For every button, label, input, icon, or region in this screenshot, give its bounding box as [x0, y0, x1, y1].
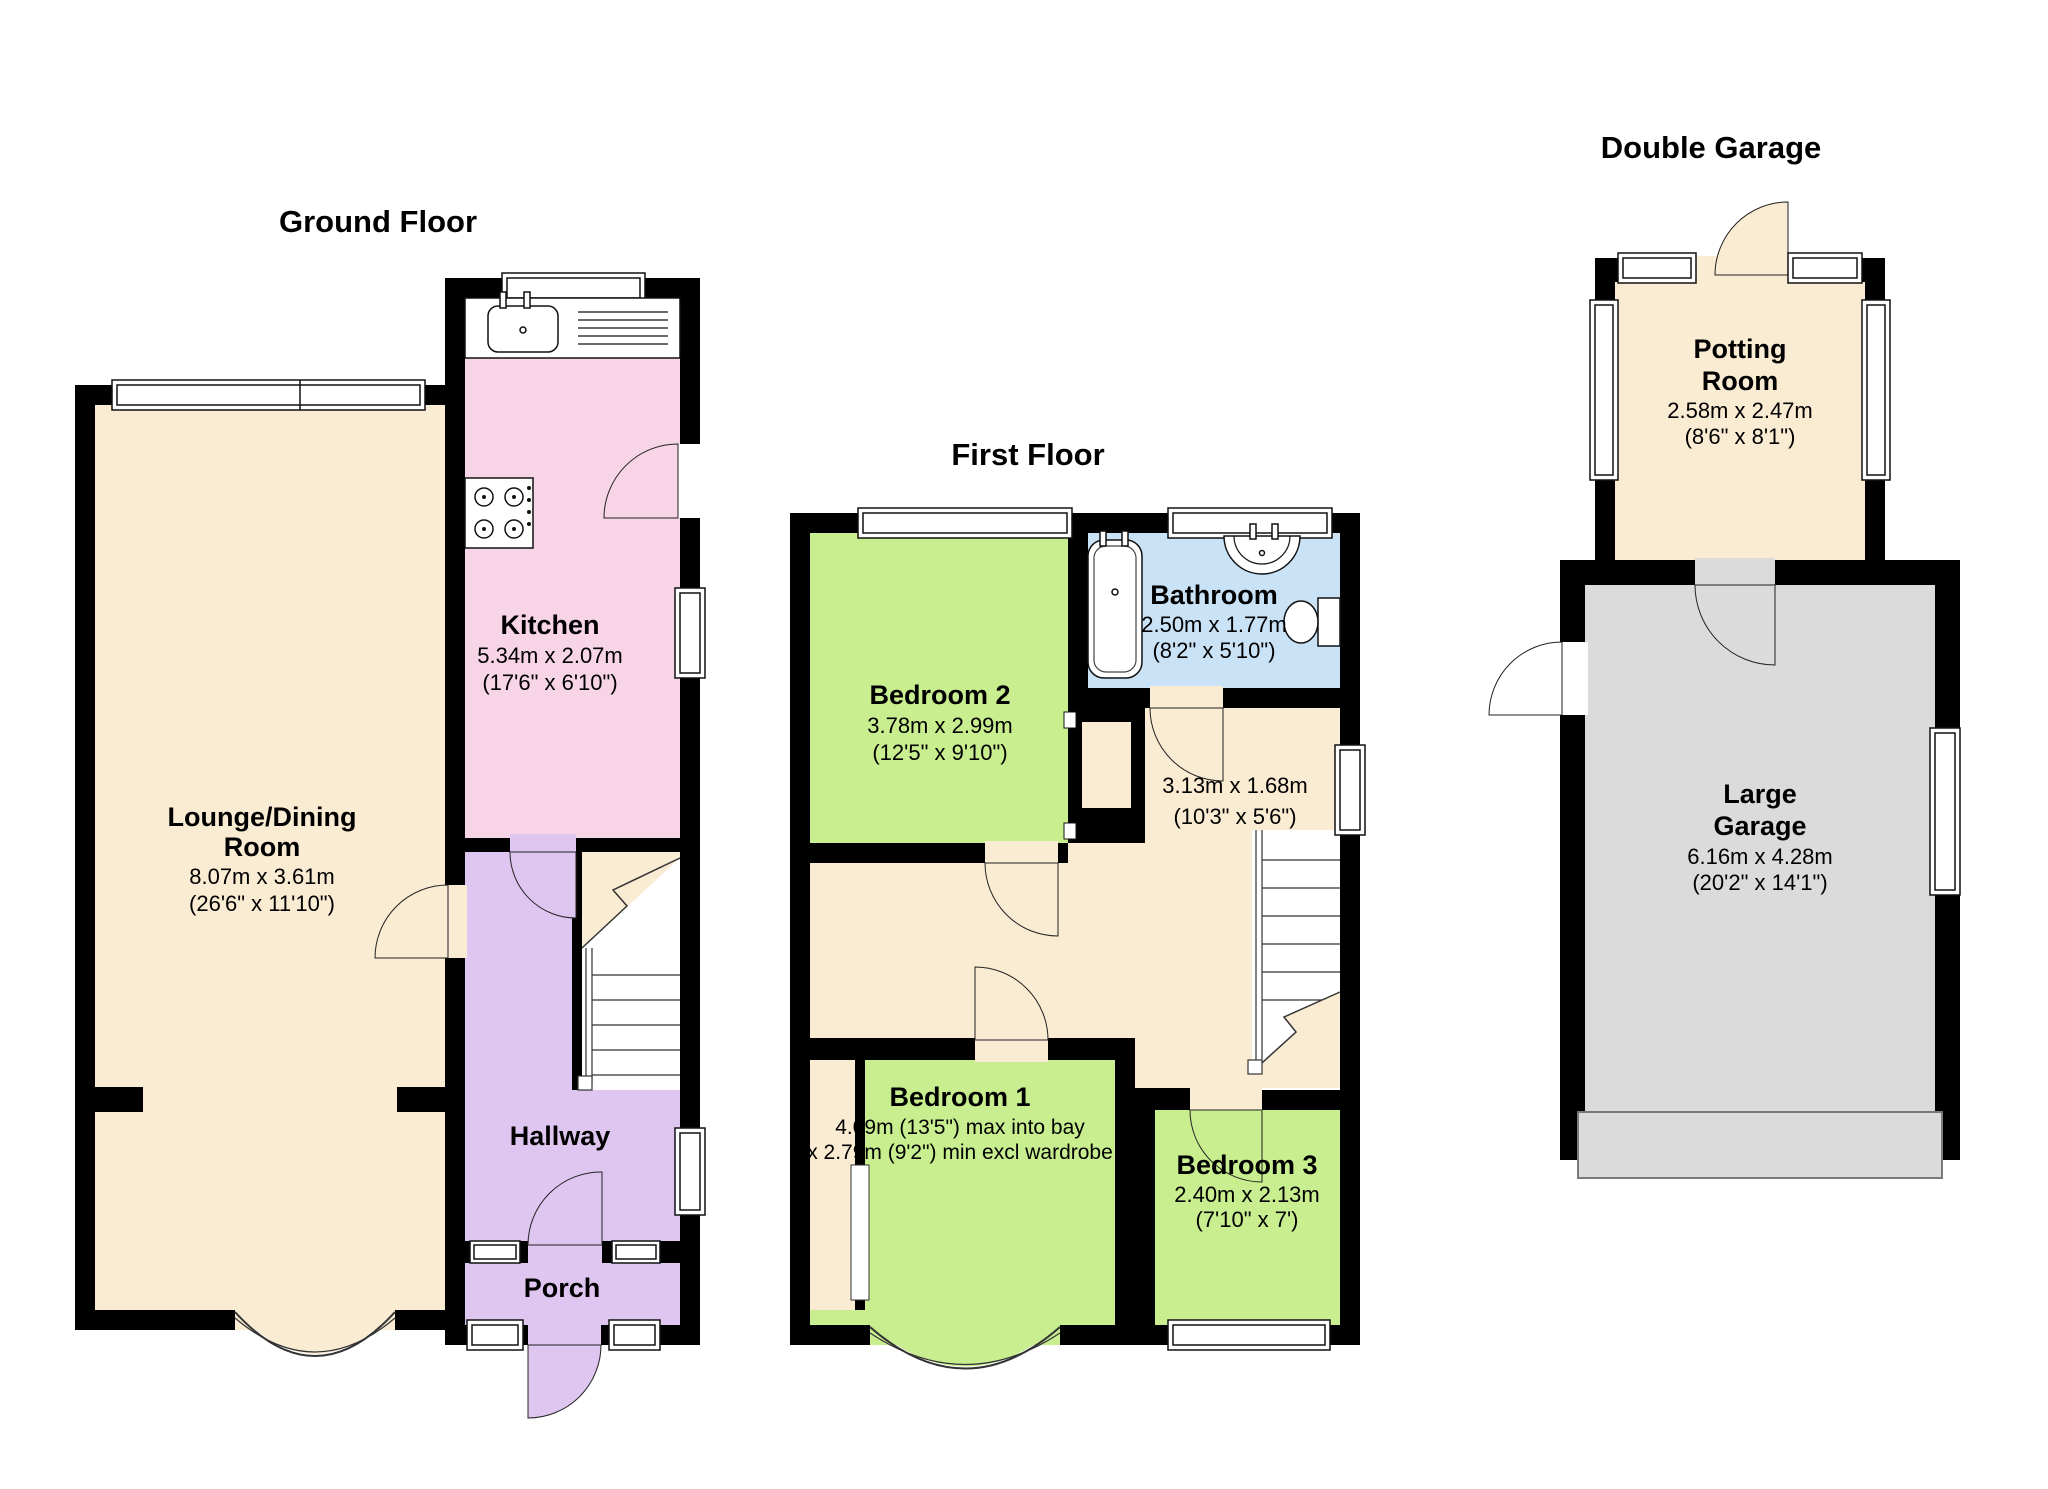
bath-icon — [1088, 531, 1142, 678]
bay-window-bedroom1 — [870, 1323, 1060, 1369]
bedroom1-label: Bedroom 1 — [889, 1082, 1030, 1112]
hob-icon — [465, 478, 533, 548]
porch-front-window-right — [609, 1320, 660, 1350]
hallway-label: Hallway — [510, 1121, 611, 1151]
large-garage-dims-ft: (20'2" x 14'1") — [1692, 870, 1827, 895]
garage-side-window — [1930, 728, 1960, 895]
first-floor-plan: First Floor — [790, 437, 1365, 1369]
room-wardrobe — [810, 1060, 855, 1310]
bay-window-lounge — [235, 1308, 395, 1356]
lounge-dims-ft: (26'6" x 11'10") — [189, 891, 335, 916]
porch-divider-window-right — [612, 1241, 660, 1263]
porch-front-door-arc — [528, 1345, 601, 1418]
garage-title: Double Garage — [1601, 130, 1822, 165]
bedroom3-dims-ft: (7'10" x 7') — [1195, 1207, 1298, 1232]
kitchen-side-door-opening — [676, 444, 704, 518]
porch-divider-window-left — [470, 1241, 520, 1263]
bedroom3-dims-m: 2.40m x 2.13m — [1174, 1182, 1320, 1207]
bathroom-door-opening — [1150, 686, 1223, 710]
lounge-label-2: Room — [224, 832, 301, 862]
potting-front-door-arc — [1715, 202, 1788, 275]
bedroom1-dims-2: x 2.79m (9'2") min excl wardrobe — [807, 1141, 1113, 1164]
landing-side-window — [1335, 745, 1365, 835]
bathroom-dims-m: 2.50m x 1.77m — [1141, 612, 1287, 637]
stairs-ground-icon — [572, 852, 680, 1090]
large-garage-dims-m: 6.16m x 4.28m — [1687, 844, 1833, 869]
lounge-top-window — [112, 380, 425, 410]
large-garage-label-1: Large — [1723, 779, 1797, 809]
kitchen-dims-m: 5.34m x 2.07m — [477, 643, 623, 668]
porch-label: Porch — [524, 1273, 601, 1303]
lounge-dims-m: 8.07m x 3.61m — [189, 864, 335, 889]
potting-label-1: Potting — [1694, 334, 1787, 364]
potting-garage-door-opening — [1695, 558, 1775, 587]
kitchen-side-window — [675, 588, 705, 678]
room-kitchen — [465, 298, 680, 838]
potting-label-2: Room — [1702, 366, 1779, 396]
landing-dims-m: 3.13m x 1.68m — [1162, 773, 1308, 798]
bedroom2-dims-ft: (12'5" x 9'10") — [872, 740, 1007, 765]
floorplan-canvas: Ground Floor — [0, 0, 2048, 1489]
bedroom2-top-window — [858, 508, 1072, 538]
kitchen-label: Kitchen — [500, 610, 599, 640]
kitchen-dims-ft: (17'6" x 6'10") — [482, 670, 617, 695]
bedroom2-label: Bedroom 2 — [869, 680, 1010, 710]
bathroom-label: Bathroom — [1150, 580, 1278, 610]
large-garage-label-2: Garage — [1713, 811, 1806, 841]
potting-top-window-left — [1618, 253, 1696, 283]
kitchen-sink-icon — [465, 292, 680, 358]
hallway-side-window — [675, 1128, 705, 1215]
bedroom2-dims-m: 3.78m x 2.99m — [867, 713, 1013, 738]
potting-side-window-right — [1862, 300, 1890, 480]
bedroom2-door-opening — [985, 841, 1058, 865]
ground-floor-title: Ground Floor — [279, 204, 477, 239]
lounge-label-1: Lounge/Dining — [168, 802, 357, 832]
bedroom3-bottom-window — [1168, 1320, 1330, 1350]
potting-dims-m: 2.58m x 2.47m — [1667, 398, 1813, 423]
porch-front-window-left — [467, 1320, 523, 1350]
bedroom3-door-opening — [1190, 1086, 1262, 1112]
wardrobe-door — [851, 1165, 869, 1300]
potting-side-window-left — [1590, 300, 1618, 480]
bedroom3-label: Bedroom 3 — [1176, 1150, 1317, 1180]
garage-door — [1578, 1112, 1942, 1178]
bedroom1-dims-1: 4.09m (13'5") max into bay — [835, 1116, 1085, 1139]
landing-dims-ft: (10'3" x 5'6") — [1173, 804, 1296, 829]
garage-plan: Double Garage Potting Room 2.58m — [1489, 130, 1960, 1178]
potting-top-window-right — [1788, 253, 1862, 283]
garage-side-door-arc — [1489, 642, 1562, 715]
bathroom-dims-ft: (8'2" x 5'10") — [1152, 638, 1275, 663]
toilet-icon — [1284, 598, 1340, 646]
potting-dims-ft: (8'6" x 8'1") — [1685, 424, 1796, 449]
first-floor-title: First Floor — [951, 437, 1104, 472]
ground-floor-plan: Ground Floor — [75, 204, 705, 1418]
stairs-first-icon — [1248, 830, 1340, 1090]
